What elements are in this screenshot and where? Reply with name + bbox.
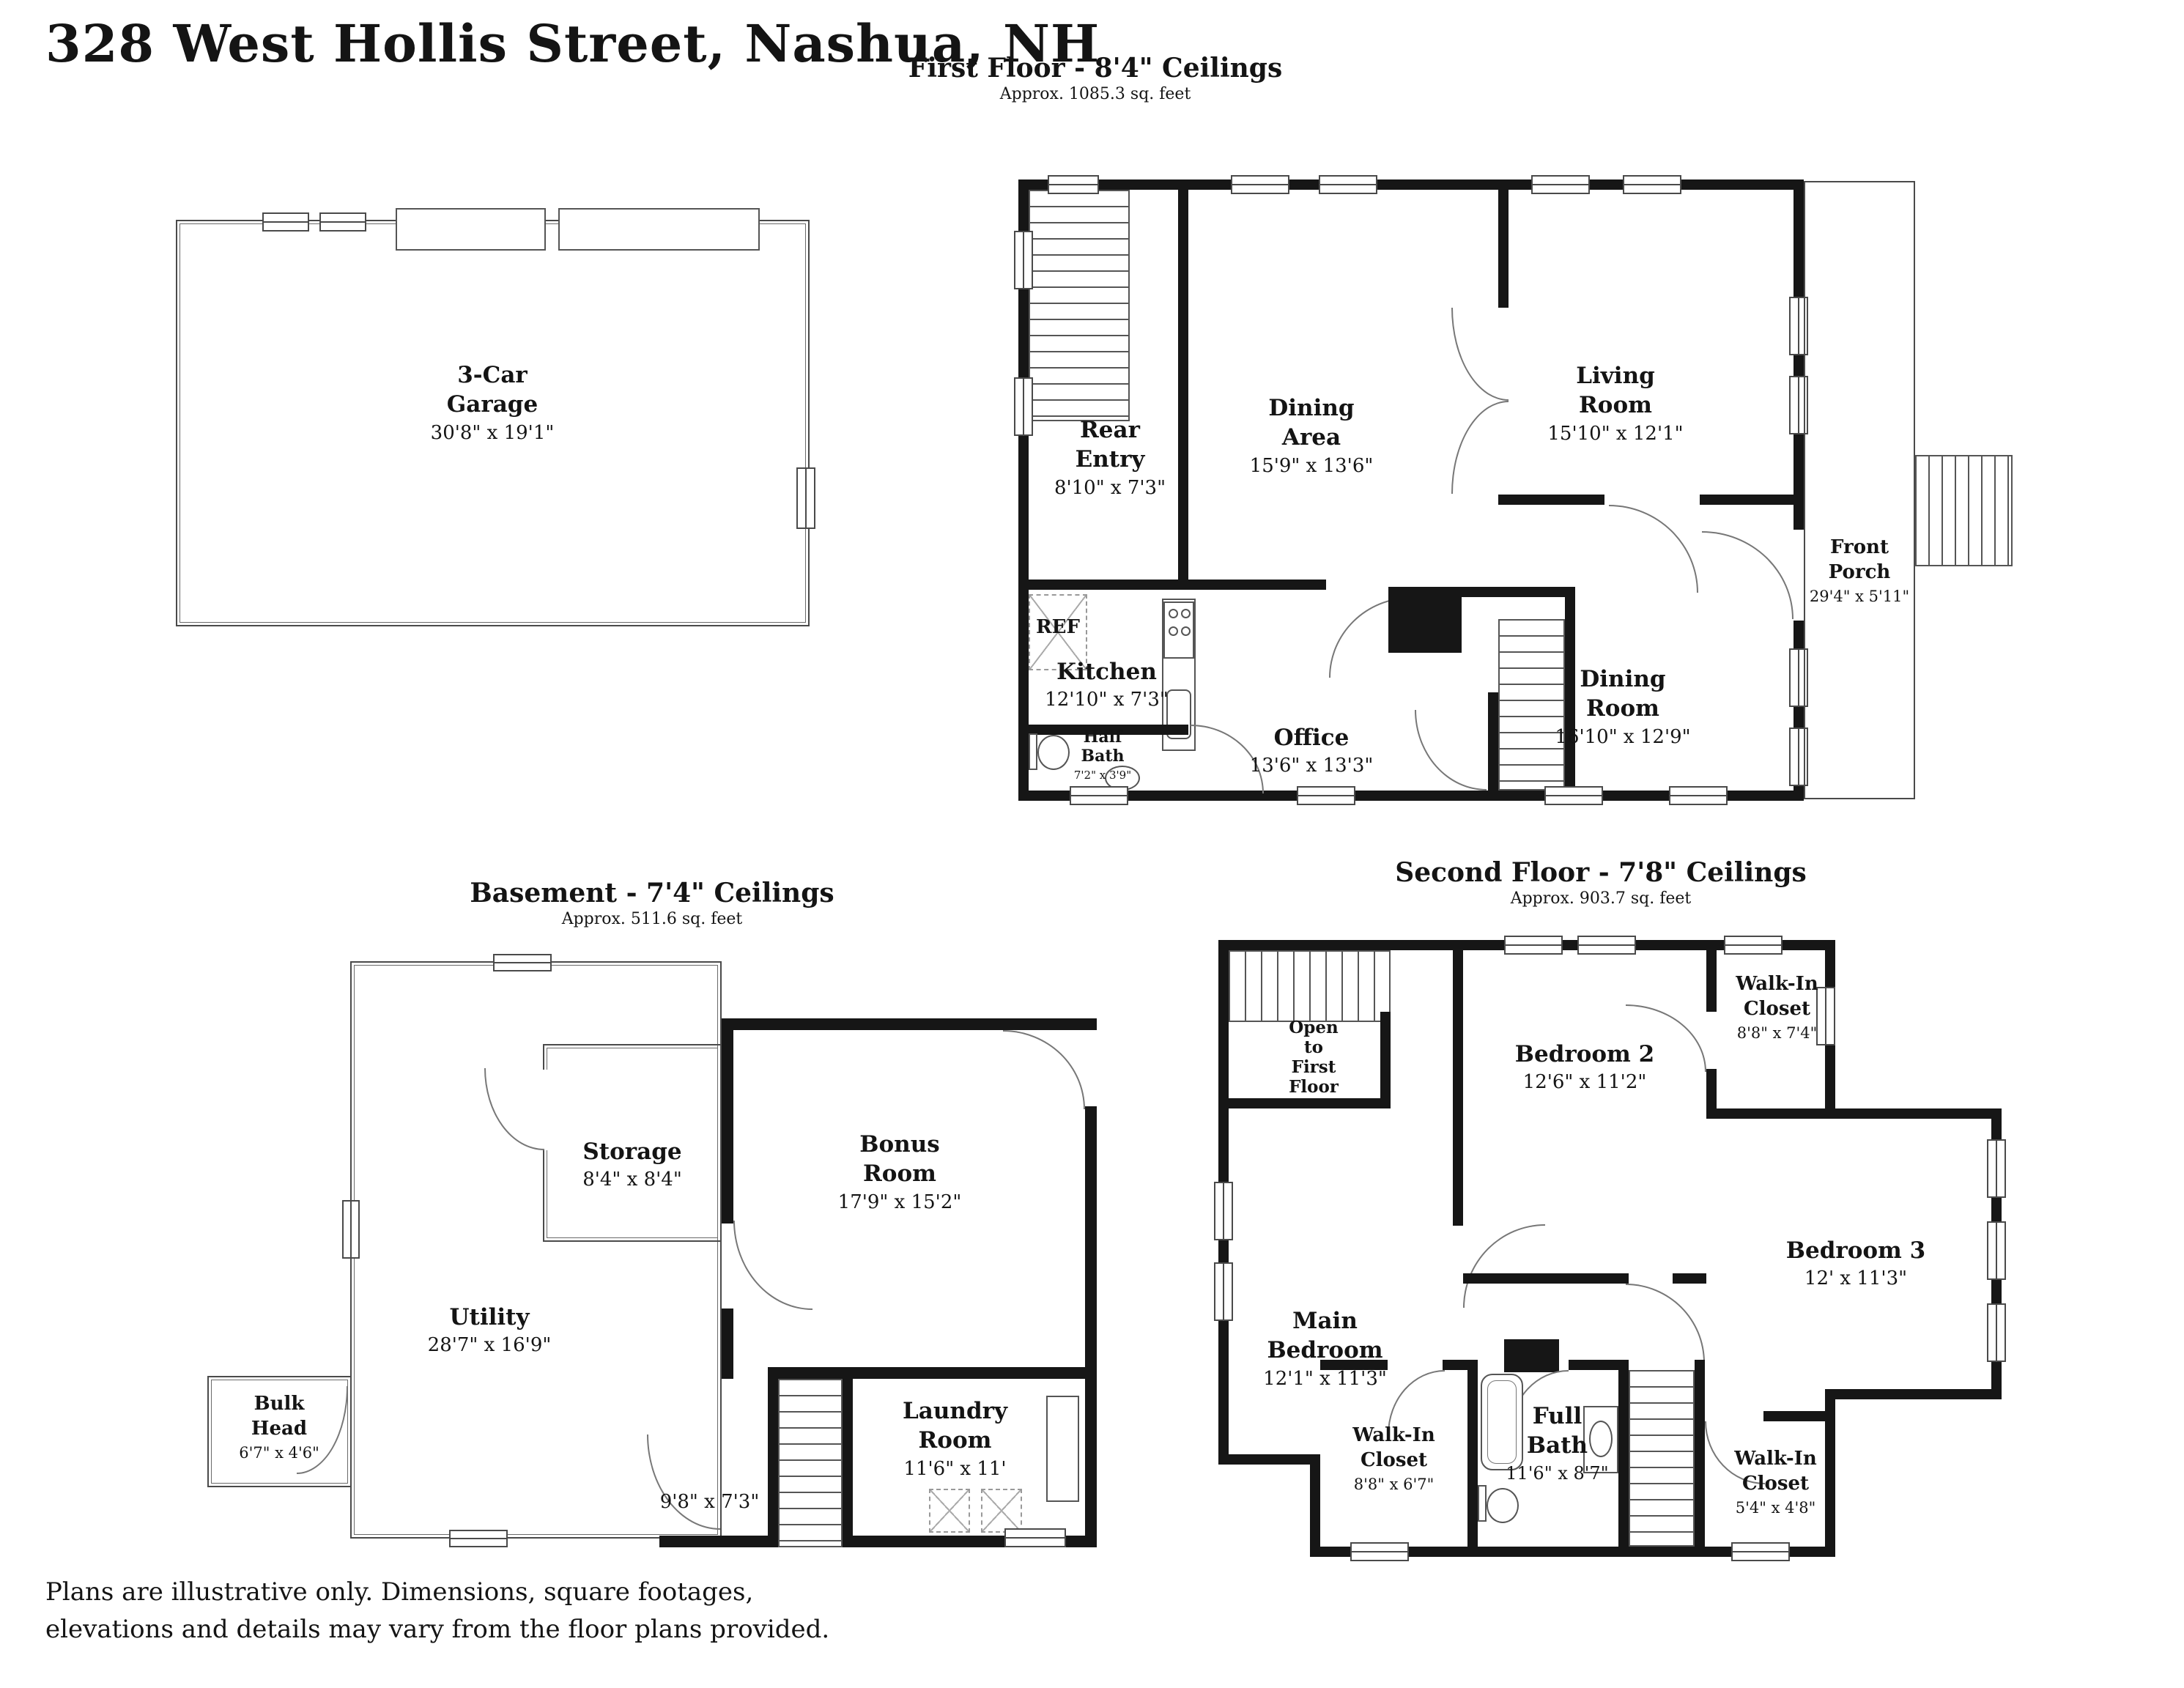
window-glyph bbox=[796, 467, 815, 529]
disclaimer: Plans are illustrative only. Dimensions,… bbox=[45, 1574, 829, 1648]
window-glyph bbox=[1669, 786, 1728, 805]
wall-segment bbox=[1706, 1108, 2002, 1119]
room-label-bedroom-3: Bedroom 312' x 11'3" bbox=[1768, 1236, 1944, 1289]
wall-segment bbox=[1673, 1273, 1706, 1284]
room-label-walk-in-closet-top: Walk-In Closet8'8" x 7'4" bbox=[1717, 972, 1837, 1042]
window-glyph bbox=[1350, 1542, 1409, 1561]
room-label-open-to-first-floor: Open to First Floor bbox=[1248, 1018, 1380, 1097]
wall-segment bbox=[1380, 1012, 1391, 1108]
washer-icon bbox=[929, 1489, 970, 1533]
wall-segment bbox=[1018, 580, 1326, 590]
window-glyph bbox=[1048, 175, 1099, 194]
window-glyph bbox=[1004, 1528, 1066, 1547]
room-label-rear-entry: Rear Entry8'10" x 7'3" bbox=[1040, 415, 1180, 499]
window-glyph bbox=[1319, 175, 1377, 194]
stairs-glyph bbox=[1629, 1370, 1695, 1547]
room-label-laundry-room: Laundry Room11'6" x 11' bbox=[873, 1396, 1037, 1480]
second-floor-heading-text: Second Floor - 7'8" Ceilings bbox=[1308, 857, 1894, 888]
window-glyph bbox=[449, 1530, 508, 1547]
room-label-utility: Utility28'7" x 16'9" bbox=[412, 1303, 566, 1356]
door-arc bbox=[1451, 401, 1509, 494]
first-floor-heading-text: First Floor - 8'4" Ceilings bbox=[802, 53, 1388, 84]
stairs-glyph bbox=[1229, 950, 1391, 1022]
window-glyph bbox=[1214, 1262, 1233, 1321]
wall-segment bbox=[1488, 692, 1498, 791]
room-label-half-bath: Half Bath7'2" x 3'9" bbox=[1048, 728, 1158, 782]
wall-segment bbox=[1467, 1370, 1478, 1547]
porch-outline bbox=[1804, 181, 1915, 799]
door-arc bbox=[1463, 1224, 1545, 1308]
chimney-block bbox=[1504, 1339, 1559, 1372]
wall-segment bbox=[1018, 179, 1804, 190]
wall-segment bbox=[1229, 1098, 1391, 1108]
second-floor-heading: Second Floor - 7'8" Ceilings Approx. 903… bbox=[1308, 857, 1894, 908]
garage-door bbox=[396, 208, 546, 251]
door-arc bbox=[1609, 505, 1698, 593]
wall-segment bbox=[1618, 1360, 1629, 1547]
room-label-garage: 3-Car Garage 30'8" x 19'1" bbox=[382, 360, 602, 444]
wall-segment bbox=[1498, 495, 1604, 505]
window-glyph bbox=[342, 1200, 360, 1259]
window-glyph bbox=[1531, 175, 1590, 194]
wall-segment bbox=[722, 1018, 1097, 1030]
wall-segment bbox=[1695, 1360, 1705, 1547]
room-label-kitchen: Kitchen12'10" x 7'3" bbox=[1032, 657, 1182, 711]
wall-segment bbox=[1700, 495, 1794, 505]
door-arc bbox=[1451, 308, 1509, 401]
window-glyph bbox=[319, 212, 366, 232]
wall-segment bbox=[1178, 179, 1188, 590]
garage-plan: 3-Car Garage 30'8" x 19'1" bbox=[176, 220, 810, 626]
wall-segment bbox=[843, 1379, 853, 1547]
wall-segment bbox=[1443, 1360, 1478, 1370]
window-glyph bbox=[1987, 1303, 2006, 1362]
garage-door bbox=[558, 208, 760, 251]
basement-plan: Storage8'4" x 8'4" Bonus Room17'9" x 15'… bbox=[207, 960, 1116, 1553]
wall-segment bbox=[768, 1379, 778, 1547]
room-label-main-bedroom: Main Bedroom12'1" x 11'3" bbox=[1239, 1306, 1411, 1390]
stove-icon bbox=[1163, 601, 1194, 659]
wall-segment bbox=[1218, 1454, 1320, 1465]
window-glyph bbox=[1504, 936, 1563, 955]
toilet-icon bbox=[1487, 1488, 1519, 1523]
room-label-bulk-head: Bulk Head6'7" x 4'6" bbox=[228, 1392, 330, 1462]
wall-segment bbox=[722, 1308, 733, 1379]
basement-heading-text: Basement - 7'4" Ceilings bbox=[359, 878, 945, 908]
window-glyph bbox=[1623, 175, 1681, 194]
second-floor-sqft: Approx. 903.7 sq. feet bbox=[1308, 889, 1894, 908]
window-glyph bbox=[1014, 377, 1033, 436]
stairs-glyph bbox=[1029, 190, 1130, 421]
refrigerator-label: REF bbox=[1018, 616, 1097, 638]
door-arc bbox=[1415, 710, 1487, 791]
dryer-icon bbox=[981, 1489, 1022, 1533]
window-glyph bbox=[1987, 1221, 2006, 1280]
room-label-storage: Storage8'4" x 8'4" bbox=[552, 1137, 713, 1191]
window-glyph bbox=[493, 954, 552, 971]
room-label-walk-in-closet-left: Walk-In Closet8'8" x 6'7" bbox=[1330, 1424, 1458, 1493]
wall-segment bbox=[1463, 1273, 1629, 1284]
floor-plan-sheet: 328 West Hollis Street, Nashua, NH First… bbox=[0, 0, 2184, 1688]
wall-segment bbox=[1794, 179, 1804, 801]
window-glyph bbox=[1014, 231, 1033, 289]
wall-segment bbox=[1569, 1360, 1620, 1370]
room-label-walk-in-closet-right: Walk-In Closet5'4" x 4'8" bbox=[1715, 1447, 1836, 1517]
wall-segment bbox=[1498, 179, 1509, 308]
room-label-dining-room: Dining Room16'10" x 12'9" bbox=[1542, 665, 1703, 748]
room-label-bedroom-2: Bedroom 212'6" x 11'2" bbox=[1497, 1040, 1673, 1093]
toilet-icon bbox=[1478, 1485, 1487, 1522]
toilet-icon bbox=[1029, 733, 1037, 770]
first-floor-heading: First Floor - 8'4" Ceilings Approx. 1085… bbox=[802, 53, 1388, 103]
basement-sqft: Approx. 511.6 sq. feet bbox=[359, 910, 945, 928]
door-arc bbox=[1003, 1030, 1085, 1109]
window-glyph bbox=[1724, 936, 1783, 955]
disclaimer-line-2: elevations and details may vary from the… bbox=[45, 1611, 829, 1648]
window-glyph bbox=[1544, 786, 1603, 805]
wall-segment bbox=[1763, 1411, 1835, 1421]
wall-segment bbox=[1835, 1389, 2002, 1399]
wall-segment bbox=[1706, 940, 1717, 1012]
window-glyph bbox=[262, 212, 309, 232]
window-glyph bbox=[1214, 1182, 1233, 1240]
wall-segment bbox=[1310, 1454, 1320, 1557]
passage-dimension-label: 9'8" x 7'3" bbox=[645, 1489, 774, 1513]
room-label-office: Office13'6" x 13'3" bbox=[1231, 723, 1392, 777]
first-floor-plan: REF bbox=[1018, 179, 2018, 801]
first-floor-sqft: Approx. 1085.3 sq. feet bbox=[802, 85, 1388, 103]
second-floor-plan: Open to First Floor Bedroom 212'6" x 11'… bbox=[1218, 940, 2002, 1557]
stairs-glyph bbox=[778, 1379, 843, 1547]
room-label-living-room: Living Room15'10" x 12'1" bbox=[1528, 361, 1703, 445]
window-glyph bbox=[1731, 1542, 1790, 1561]
door-arc bbox=[1702, 531, 1794, 619]
room-label-front-porch: Front Porch29'4" x 5'11" bbox=[1805, 536, 1914, 605]
basement-heading: Basement - 7'4" Ceilings Approx. 511.6 s… bbox=[359, 878, 945, 928]
room-label-full-bath: Full Bath11'6" x 8'7" bbox=[1500, 1402, 1614, 1484]
wall-segment bbox=[768, 1367, 1097, 1379]
window-glyph bbox=[1987, 1139, 2006, 1198]
room-label-bonus-room: Bonus Room17'9" x 15'2" bbox=[815, 1130, 984, 1213]
window-glyph bbox=[1577, 936, 1636, 955]
door-opening bbox=[1085, 1030, 1097, 1106]
door-arc bbox=[1626, 1284, 1705, 1363]
wall-segment bbox=[1453, 940, 1463, 1226]
wall-segment bbox=[1462, 587, 1575, 597]
chimney-block bbox=[1388, 587, 1462, 653]
door-arc bbox=[733, 1221, 812, 1310]
disclaimer-line-1: Plans are illustrative only. Dimensions,… bbox=[45, 1574, 829, 1611]
wall-segment bbox=[722, 1018, 733, 1224]
window-glyph bbox=[1297, 786, 1355, 805]
laundry-counter bbox=[1046, 1396, 1079, 1502]
wall-segment bbox=[1706, 1069, 1717, 1119]
window-glyph bbox=[1070, 786, 1128, 805]
porch-steps bbox=[1915, 455, 2013, 566]
window-glyph bbox=[1231, 175, 1289, 194]
room-label-dining-area: Dining Area15'9" x 13'6" bbox=[1227, 393, 1396, 477]
